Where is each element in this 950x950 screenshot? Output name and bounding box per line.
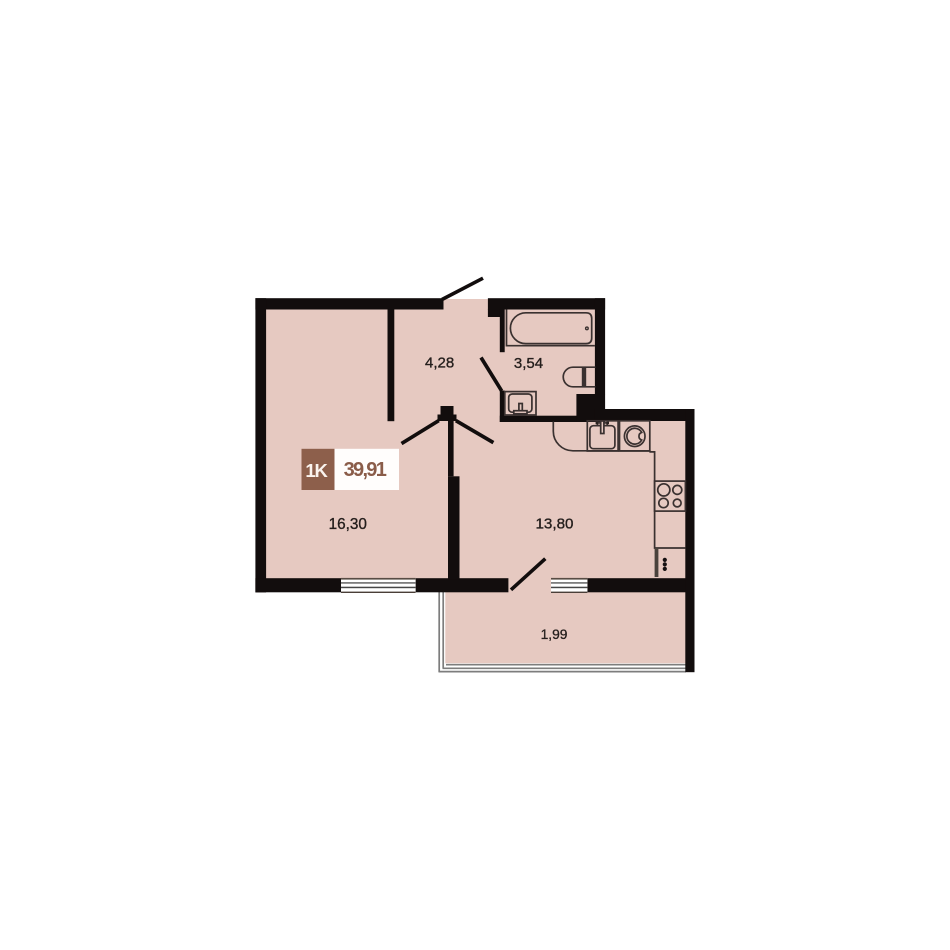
svg-text:16,30: 16,30	[329, 516, 367, 533]
svg-text:39,91: 39,91	[344, 459, 387, 481]
svg-text:1,99: 1,99	[541, 627, 568, 642]
svg-text:4,28: 4,28	[425, 355, 454, 372]
svg-text:3,54: 3,54	[514, 355, 543, 372]
svg-text:13,80: 13,80	[535, 515, 573, 532]
svg-text:1K: 1K	[305, 460, 328, 481]
